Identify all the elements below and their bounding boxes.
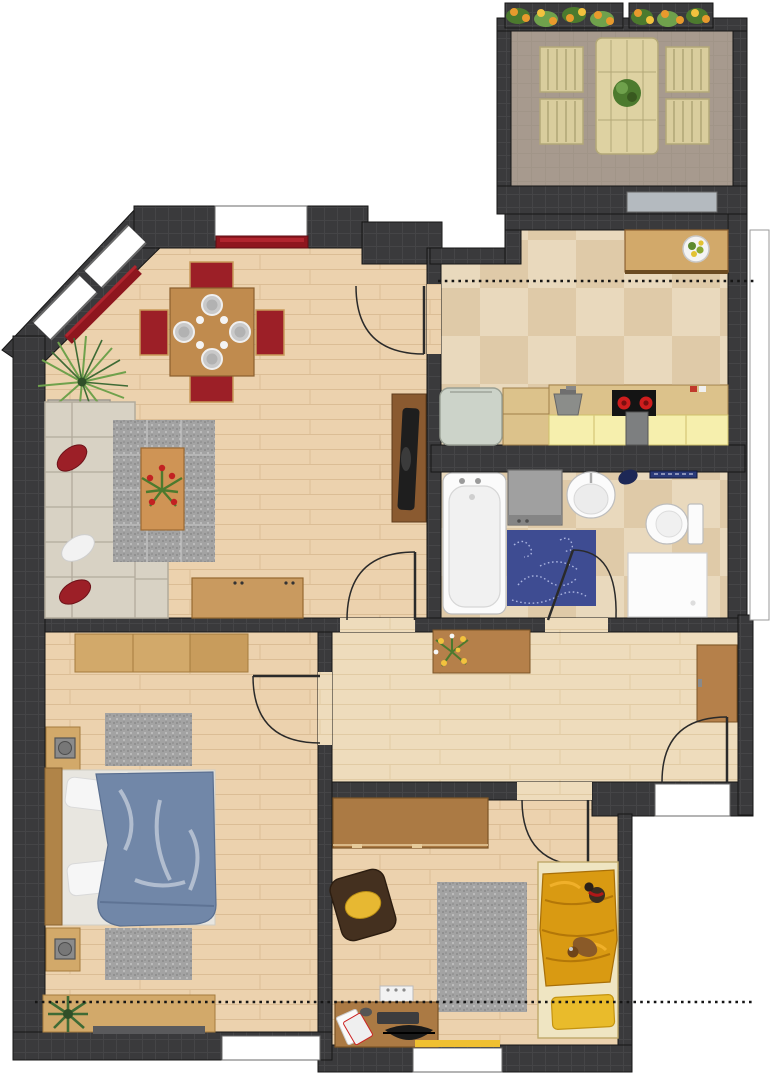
double-bed [45,768,216,926]
left-wall [13,336,45,1060]
glass [220,316,228,324]
right-wall [728,212,747,632]
bedroom-rug-bottom [105,928,192,980]
kitchen-counter-row [440,385,728,445]
livingroom-hall-door-gap [340,618,415,632]
cistern [688,504,703,544]
nightstand-bottom [46,928,80,971]
balcony-glass-door [627,192,717,212]
drain [469,494,475,500]
tap [459,478,465,484]
wash-basin [567,472,615,518]
kids-rug [437,882,527,1012]
mouse [360,1008,372,1017]
tv-unit [392,394,426,522]
headboard [45,768,62,925]
bedroom-bottom-window [222,1036,320,1060]
kids-wall-shelf [333,798,488,848]
hallway-floor [330,630,740,784]
dining-chair-north [190,262,233,289]
shower-tray [628,553,707,617]
fruit-bowl [683,236,709,262]
bedroom-door-gap [318,672,332,745]
washing-machine [508,470,562,525]
kitchen-cabinet [503,388,549,445]
nightstand-top [46,727,80,770]
kids-bed [538,862,618,1038]
kids-right-wall [618,814,632,1072]
kitchen-door-gap [427,284,441,354]
table-plant [613,79,641,107]
entrance-opening [655,784,730,816]
garden-chair [666,47,709,92]
garden-chair [666,99,709,144]
yellow-pillow [551,994,615,1029]
hall-wardrobe [697,645,737,722]
spice-jar [690,386,697,392]
radiator [93,1026,205,1034]
balcony-left-wall [497,18,511,206]
bathtub [443,473,506,614]
yellow-windowsill [415,1040,500,1047]
kitchen-bath-divider [431,445,745,472]
kids-bottom-window [413,1048,502,1072]
dining-chair-east [256,310,284,355]
wardrobe-handle [698,679,702,687]
floor-plan [0,0,772,1080]
kitchen-top-wall [505,212,747,230]
living-top-window [215,206,307,240]
glass [196,316,204,324]
kids-door-gap [517,782,592,800]
living-sideboard [192,578,303,618]
floor-plan-canvas [0,0,772,1080]
garden-chair [540,99,583,144]
glass [220,341,228,349]
bathroom-door-gap [545,618,608,632]
dining-chair-west [140,310,168,355]
hall-right-wall [738,615,753,815]
fridge [440,388,502,445]
breakfast-counter [625,230,728,274]
adjacent-structure-outline [750,230,769,620]
glass [196,341,204,349]
garden-chair [540,47,583,92]
hall-dresser [433,630,530,673]
keyboard [377,1012,419,1024]
spice-jar [699,386,706,392]
stool [626,412,648,445]
bedroom-wardrobe [75,634,248,672]
bath-rug [507,530,596,606]
balcony-right-wall [733,18,747,206]
bedroom-rug-top [105,713,192,766]
tap [475,478,481,484]
kitchen-sink [554,394,582,415]
toilet [646,504,703,544]
coffee-table [141,448,184,530]
dining-chair-south [190,375,233,402]
garden-table [596,38,658,154]
